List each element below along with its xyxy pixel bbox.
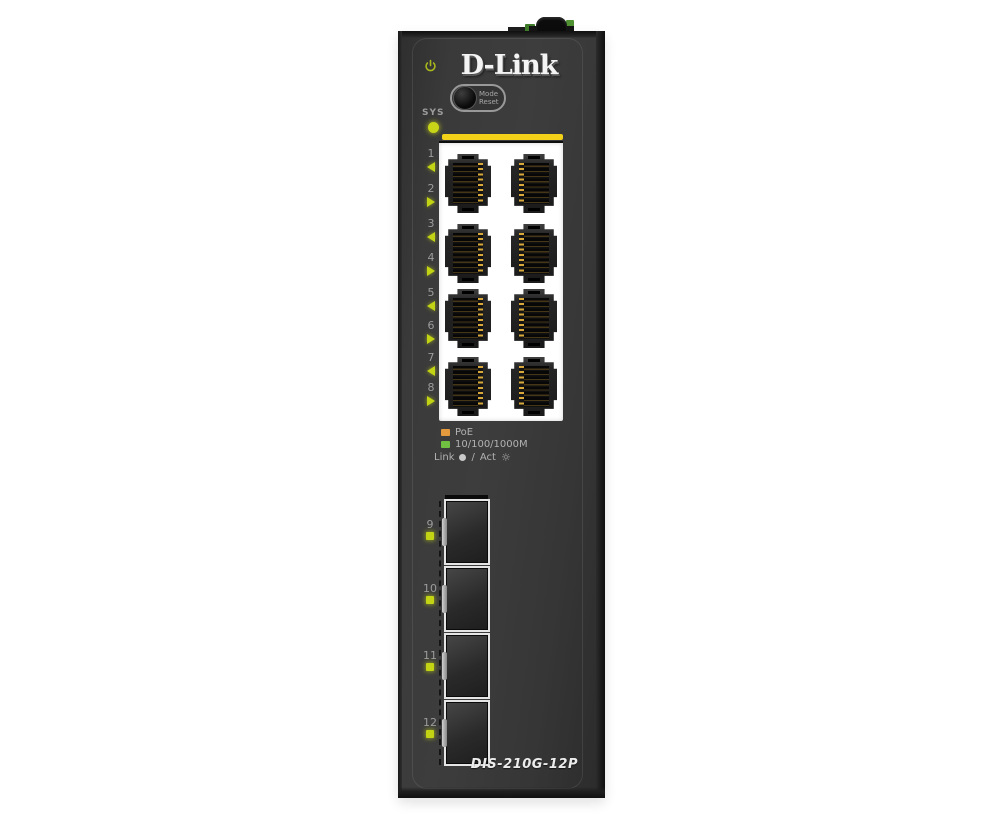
port-number: 1 (428, 148, 435, 159)
rj45-port-panel (439, 141, 563, 421)
model-label: DIS-210G-12P (471, 757, 578, 772)
rj45-port[interactable] (511, 224, 557, 283)
port-led-icon (427, 396, 435, 406)
port-number: 10 (423, 583, 437, 594)
rj45-gold-contacts (478, 233, 483, 274)
speed-label: 10/100/1000M (455, 439, 528, 450)
rj45-pins (453, 366, 483, 407)
act-label: Act (480, 452, 496, 463)
sfp-port-label: 12 (420, 717, 440, 738)
port-led-icon (427, 301, 435, 311)
rj45-pins (519, 233, 549, 274)
rj45-gold-contacts (478, 298, 483, 339)
port-label: 2 (422, 183, 440, 207)
rj45-pins (453, 163, 483, 204)
sfp-port[interactable] (444, 633, 490, 699)
port-label: 4 (422, 252, 440, 276)
rj45-gold-contacts (519, 298, 524, 339)
sfp-latch-icon (442, 585, 447, 613)
port-label: 6 (422, 320, 440, 344)
port-led-icon (427, 197, 435, 207)
rj45-gold-contacts (478, 163, 483, 204)
rj45-gold-contacts (519, 366, 524, 407)
mode-reset-button[interactable]: Mode Reset (450, 84, 506, 112)
legend-link-act: Link / Act ☼ (434, 452, 511, 463)
sys-label: SYS (422, 108, 444, 118)
port-number: 7 (428, 352, 435, 363)
link-dot-icon (459, 454, 466, 461)
legend-poe: PoE (441, 427, 473, 438)
port-led-icon (427, 232, 435, 242)
brand-logo: D-Link (454, 50, 564, 81)
port-number: 3 (428, 218, 435, 229)
sfp-latch-icon (442, 518, 447, 546)
port-number: 5 (428, 287, 435, 298)
port-label: 5 (422, 287, 440, 311)
port-led-icon (427, 366, 435, 376)
port-label: 1 (422, 148, 440, 172)
port-number: 8 (428, 382, 435, 393)
rj45-port[interactable] (445, 289, 491, 348)
port-number: 9 (427, 519, 434, 530)
rj45-gold-contacts (519, 233, 524, 274)
chassis-top-bevel (398, 31, 605, 38)
port-number: 11 (423, 650, 437, 661)
rj45-port[interactable] (445, 357, 491, 416)
port-number: 2 (428, 183, 435, 194)
speed-swatch-icon (441, 441, 450, 448)
rj45-gold-contacts (519, 163, 524, 204)
mode-reset-knob[interactable] (453, 86, 477, 110)
reset-label: Reset (479, 98, 499, 106)
accent-bar (442, 134, 563, 140)
sfp-led-icon (426, 663, 434, 671)
rj45-pins (453, 233, 483, 274)
sfp-latch-icon (442, 719, 447, 747)
legend-speed: 10/100/1000M (441, 439, 528, 450)
switch-chassis: D-Link Mode Reset SYS 1 2 3 4 5 6 (398, 31, 605, 798)
port-led-icon (427, 266, 435, 276)
rj45-pins (519, 366, 549, 407)
sfp-port-label: 10 (420, 583, 440, 604)
sfp-led-icon (426, 596, 434, 604)
mode-label: Mode (479, 90, 499, 98)
poe-swatch-icon (441, 429, 450, 436)
rj45-port[interactable] (511, 289, 557, 348)
product-photo-background: D-Link Mode Reset SYS 1 2 3 4 5 6 (0, 0, 1000, 820)
sfp-port-label: 9 (420, 519, 440, 540)
port-number: 6 (428, 320, 435, 331)
act-blink-icon: ☼ (501, 452, 511, 463)
mode-reset-label: Mode Reset (479, 90, 499, 106)
sfp-led-icon (426, 730, 434, 738)
chassis-left-edge (398, 31, 402, 798)
sfp-port[interactable] (444, 566, 490, 632)
sfp-latch-icon (442, 652, 447, 680)
sfp-port[interactable] (444, 499, 490, 565)
rj45-pins (519, 163, 549, 204)
rj45-port[interactable] (445, 224, 491, 283)
poe-label: PoE (455, 427, 473, 438)
rj45-port[interactable] (511, 357, 557, 416)
rj45-port[interactable] (511, 154, 557, 213)
chassis-right-edge (596, 31, 605, 798)
sys-led (428, 122, 439, 133)
sfp-port-label: 11 (420, 650, 440, 671)
rj45-port[interactable] (445, 154, 491, 213)
link-act-separator: / (471, 452, 474, 463)
rj45-pins (519, 298, 549, 339)
port-led-icon (427, 334, 435, 344)
port-number: 12 (423, 717, 437, 728)
port-label: 7 (422, 352, 440, 376)
rj45-gold-contacts (478, 366, 483, 407)
port-led-icon (427, 162, 435, 172)
sfp-led-icon (426, 532, 434, 540)
chassis-bottom-bevel (398, 787, 605, 798)
port-number: 4 (428, 252, 435, 263)
power-icon (424, 59, 437, 73)
link-label: Link (434, 452, 454, 463)
port-label: 8 (422, 382, 440, 406)
port-label: 3 (422, 218, 440, 242)
rj45-pins (453, 298, 483, 339)
